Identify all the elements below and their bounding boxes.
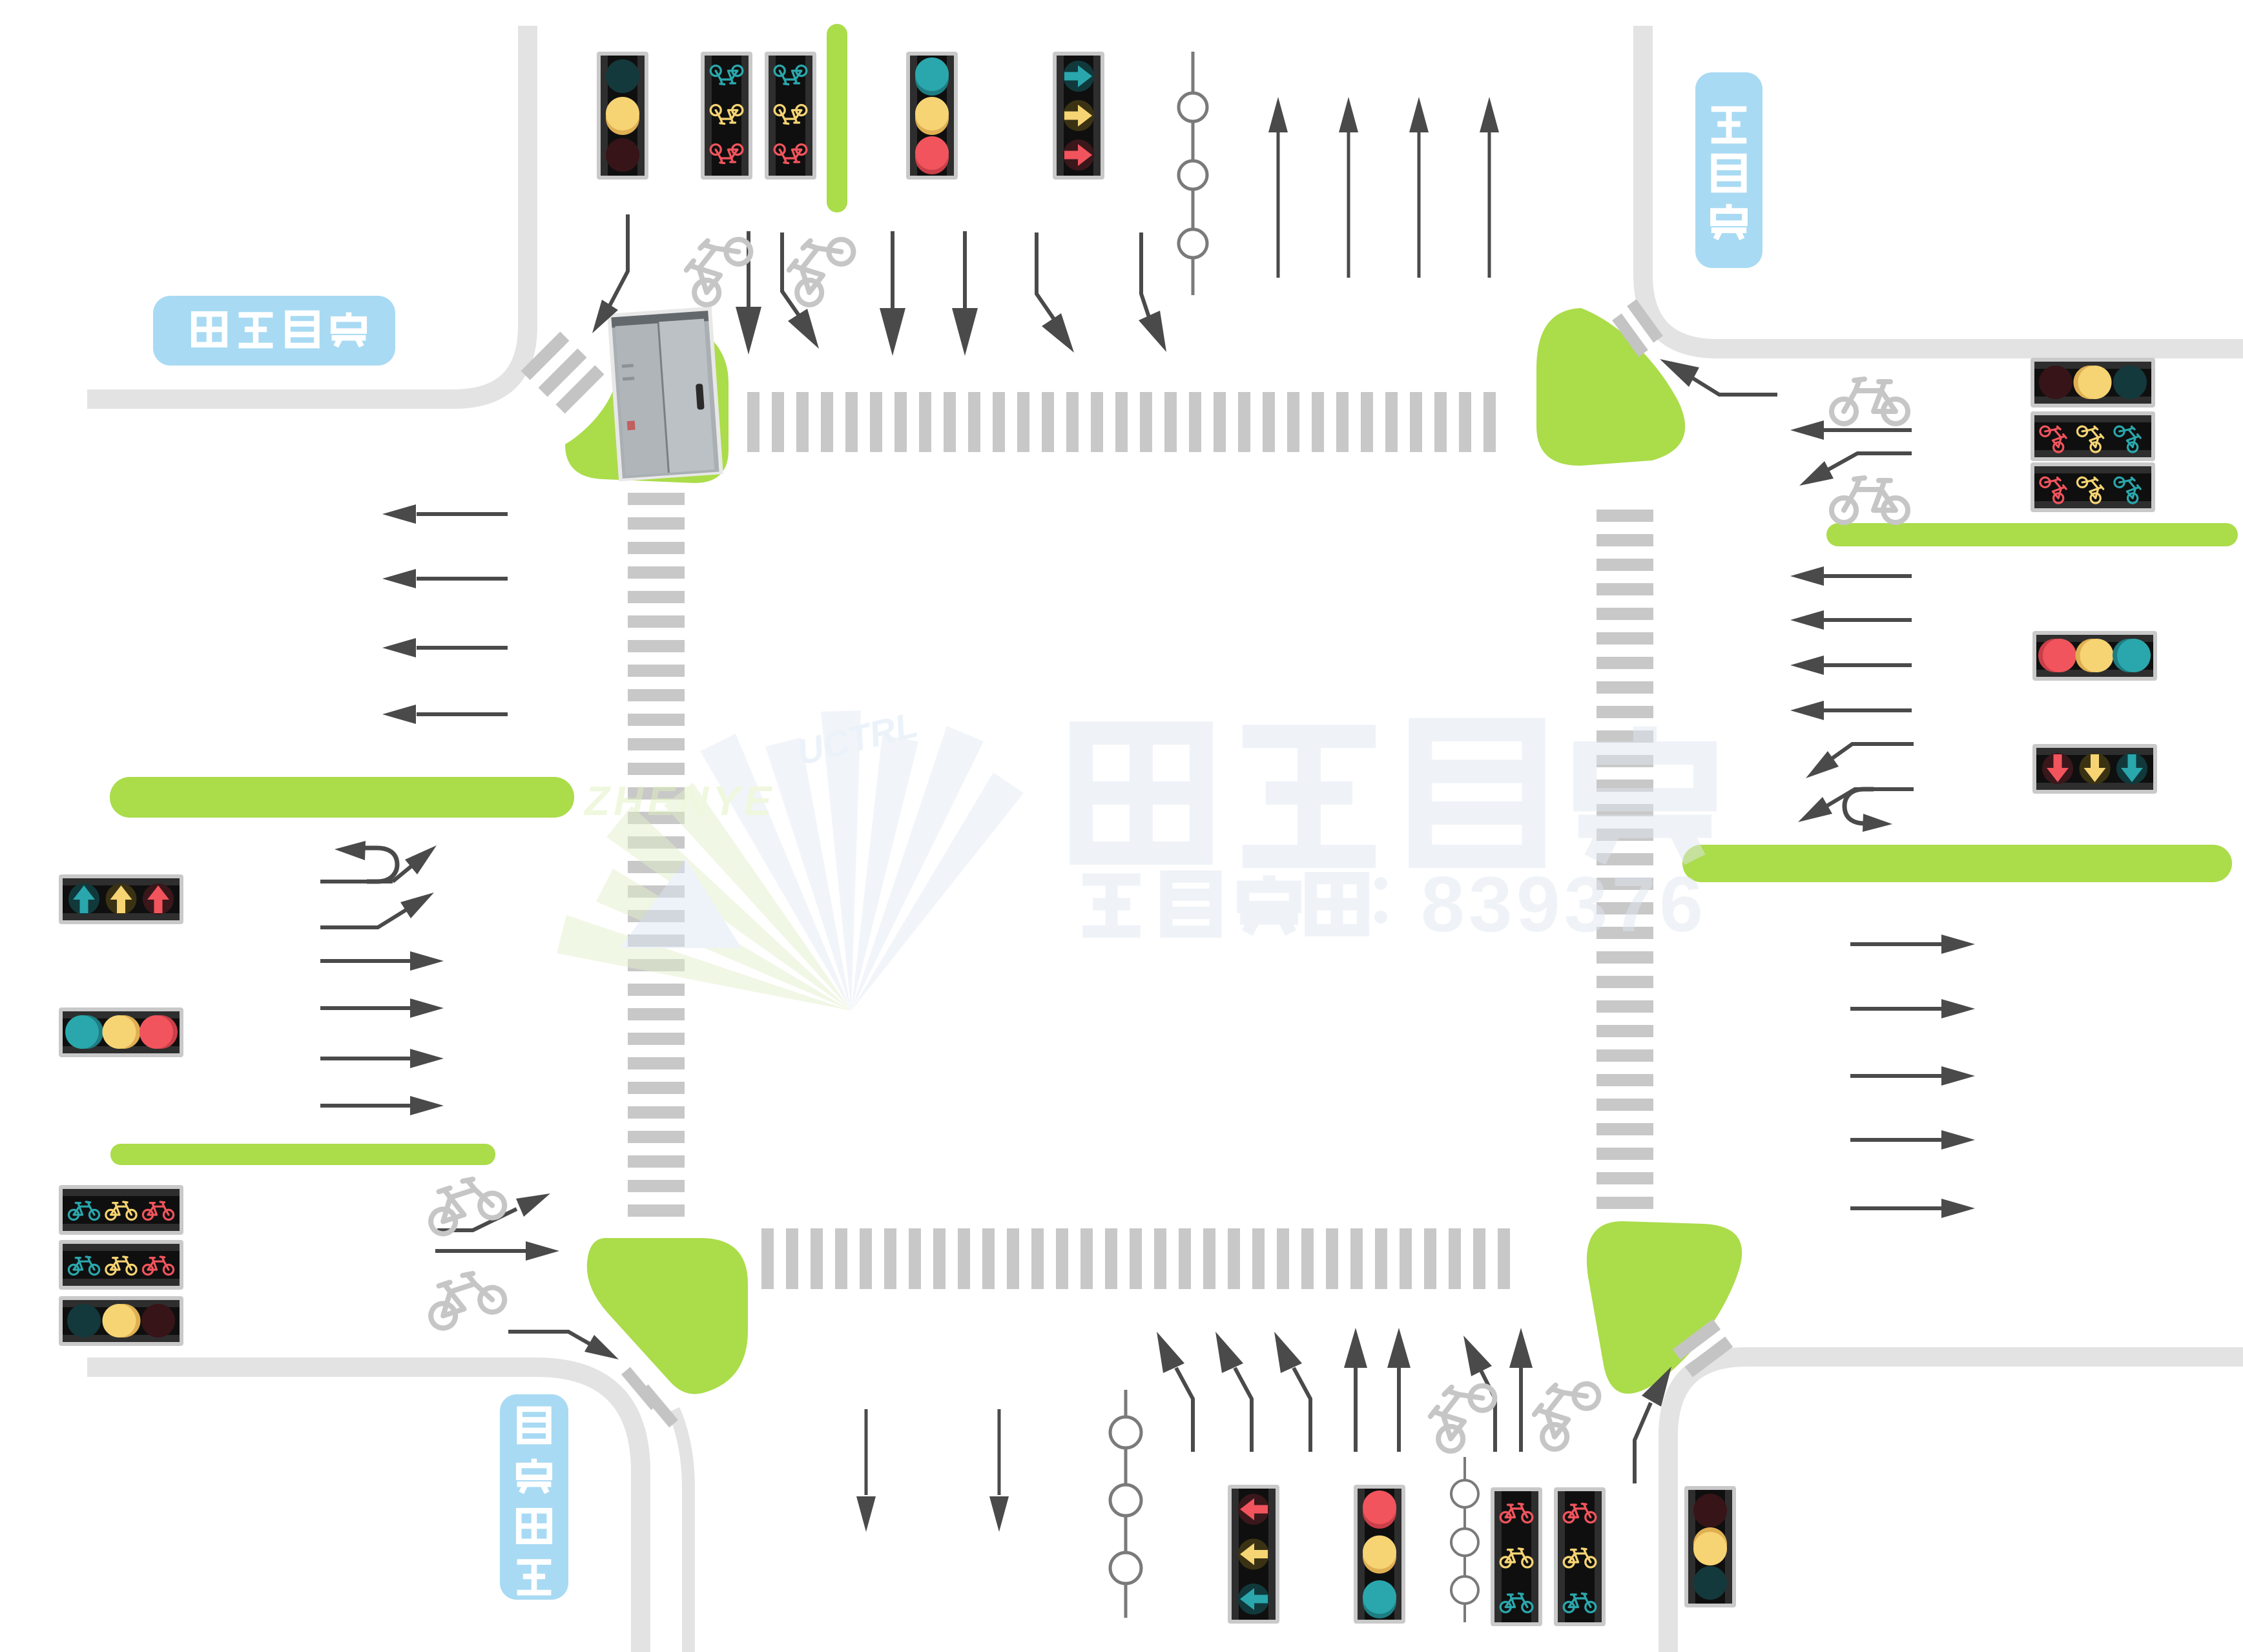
svg-text:839376: 839376 [1421, 860, 1707, 948]
svg-text:ZHENYE: ZHENYE [583, 778, 776, 824]
